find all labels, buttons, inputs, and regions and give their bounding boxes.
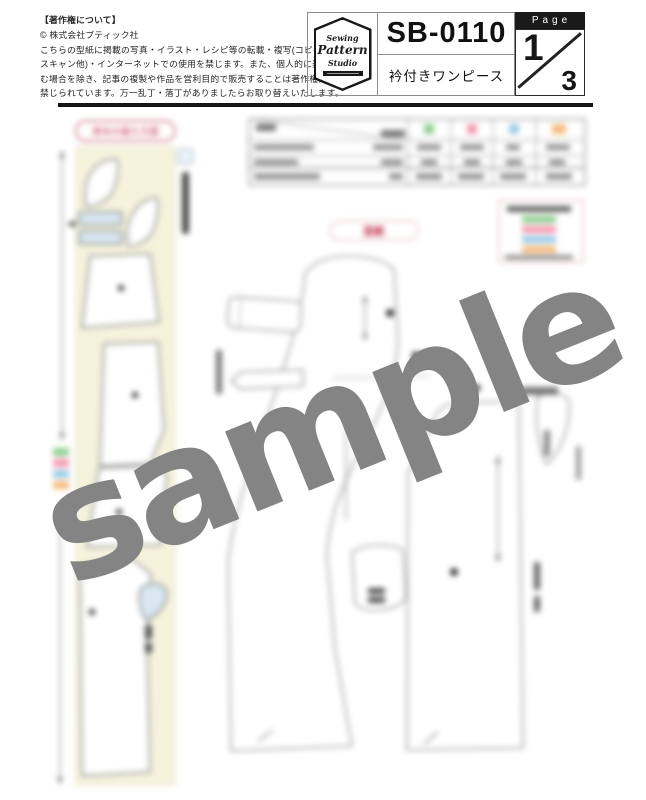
pattern-sheet-page: 表布の裁ち方図: [0, 0, 646, 800]
title-box: Sewing Pattern Studio SB-0110 衿付きワンピース: [307, 12, 515, 96]
logo-word-studio: Studio: [328, 58, 357, 68]
page-number-box: 1 3: [515, 29, 585, 96]
fold-label: [178, 149, 193, 234]
brand-logo-badge: Sewing Pattern Studio: [314, 17, 372, 91]
logo-sub-bar: [323, 71, 363, 76]
page-current: 1: [523, 29, 544, 69]
pattern-label-pill: 型紙: [330, 221, 418, 240]
pattern-number-cell: SB-0110: [378, 13, 515, 55]
cutting-layout-label: 表布の裁ち方図: [92, 126, 159, 138]
header: 【著作権について】 © 株式会社ブティック社 こちらの型紙に掲載の写真・イラスト…: [0, 0, 646, 112]
page-total: 3: [561, 65, 577, 96]
pattern-number: SB-0110: [387, 17, 507, 50]
pattern-name-cell: 衿付きワンピース: [378, 55, 515, 95]
interfacing-strip-2: [79, 231, 122, 244]
copyright-line: スキャン他)・インターネットでの使用を禁じます。また、個人的に楽し: [40, 57, 308, 71]
copyright-line: こちらの型紙に掲載の写真・イラスト・レシピ等の転載・複写(コピー・: [40, 43, 308, 57]
header-divider-rule: [58, 103, 593, 107]
copyright-company: © 株式会社ブティック社: [40, 28, 308, 42]
page-indicator-label: Page: [515, 12, 585, 29]
logo-word-sewing: Sewing: [326, 33, 358, 43]
logo-word-pattern: Pattern: [317, 43, 367, 57]
pattern-label: 型紙: [364, 225, 385, 238]
logo-cell: Sewing Pattern Studio: [308, 13, 378, 95]
cuff-piece: [227, 297, 302, 333]
pattern-name: 衿付きワンピース: [389, 65, 504, 85]
page-indicator: Page 1 3: [515, 12, 585, 96]
copyright-block: 【著作権について】 © 株式会社ブティック社 こちらの型紙に掲載の写真・イラスト…: [40, 13, 308, 100]
size-table: [249, 119, 585, 185]
copyright-title: 【著作権について】: [40, 13, 308, 27]
copyright-line: む場合を除き、記事の複製や作品を営利目的で販売することは著作権法で: [40, 72, 308, 86]
copyright-line: 禁じられています。万一乱丁・落丁がありましたらお取り替えいたします。: [40, 86, 308, 100]
interfacing-strip-1: [79, 212, 122, 225]
